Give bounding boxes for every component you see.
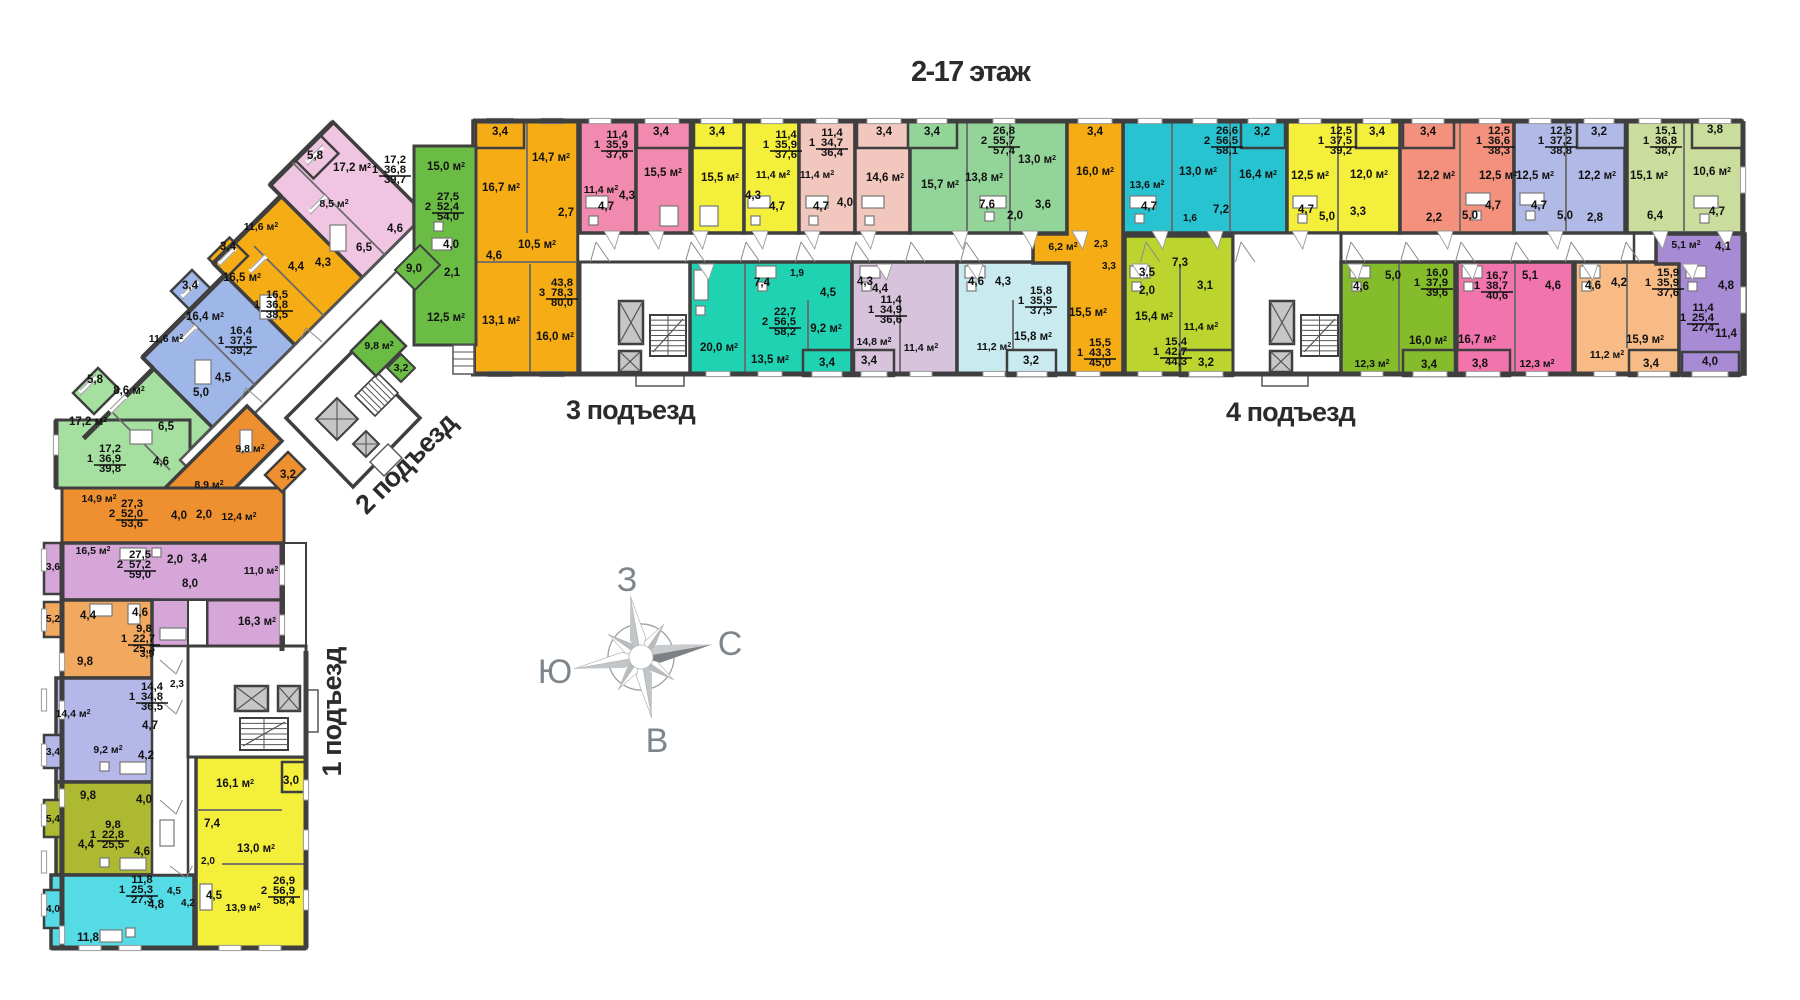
svg-text:37,5: 37,5 xyxy=(1030,305,1052,317)
svg-text:13,0 м2: 13,0 м2 xyxy=(237,843,275,855)
svg-text:38,8: 38,8 xyxy=(1550,145,1572,157)
svg-text:3,6: 3,6 xyxy=(46,562,60,573)
svg-text:14,7 м2: 14,7 м2 xyxy=(532,152,570,164)
svg-text:1,9: 1,9 xyxy=(790,268,804,279)
svg-text:13,1 м2: 13,1 м2 xyxy=(482,315,520,327)
svg-text:1: 1 xyxy=(1680,312,1686,324)
svg-text:6,5: 6,5 xyxy=(356,242,373,254)
svg-text:12,5 м2: 12,5 м2 xyxy=(1479,170,1517,182)
svg-text:3,0: 3,0 xyxy=(283,775,299,787)
svg-text:39,8: 39,8 xyxy=(99,463,121,475)
svg-text:38,7: 38,7 xyxy=(1655,145,1677,157)
svg-text:1: 1 xyxy=(1643,135,1649,147)
svg-text:58,4: 58,4 xyxy=(273,895,296,907)
svg-text:4,8: 4,8 xyxy=(1718,280,1735,292)
svg-text:14,6 м2: 14,6 м2 xyxy=(866,172,904,184)
svg-text:3,3: 3,3 xyxy=(1102,261,1116,272)
svg-text:1 подъезд: 1 подъезд xyxy=(317,647,347,777)
svg-text:1: 1 xyxy=(372,164,378,176)
svg-text:4,2: 4,2 xyxy=(1611,277,1627,289)
svg-text:3,4: 3,4 xyxy=(492,126,509,138)
svg-text:4,1: 4,1 xyxy=(1715,241,1732,253)
svg-text:1: 1 xyxy=(129,691,135,703)
svg-text:2,0: 2,0 xyxy=(1007,210,1023,222)
svg-text:7,6: 7,6 xyxy=(979,199,995,211)
svg-text:16,0 м2: 16,0 м2 xyxy=(1409,335,1447,347)
svg-text:6,2 м2: 6,2 м2 xyxy=(1048,241,1077,253)
svg-text:4,6: 4,6 xyxy=(153,456,169,468)
svg-text:58,1: 58,1 xyxy=(1216,145,1238,157)
svg-text:3,4: 3,4 xyxy=(220,241,237,253)
svg-text:5,8: 5,8 xyxy=(87,374,104,386)
svg-text:3,1: 3,1 xyxy=(1197,280,1214,292)
svg-text:4,0: 4,0 xyxy=(171,510,187,522)
svg-text:С: С xyxy=(718,625,743,663)
svg-text:В: В xyxy=(646,722,669,760)
svg-text:11,4 м2: 11,4 м2 xyxy=(756,169,791,181)
svg-text:1: 1 xyxy=(218,335,224,347)
svg-text:4,3: 4,3 xyxy=(995,276,1011,288)
svg-text:1: 1 xyxy=(1476,135,1482,147)
svg-text:4,3: 4,3 xyxy=(315,257,331,269)
svg-text:2,3: 2,3 xyxy=(1094,239,1108,250)
svg-text:5,1 м2: 5,1 м2 xyxy=(1671,239,1700,251)
svg-text:11,6 м2: 11,6 м2 xyxy=(149,333,184,345)
svg-text:2: 2 xyxy=(109,508,115,520)
svg-text:39,2: 39,2 xyxy=(1330,145,1352,157)
svg-text:16,5 м2: 16,5 м2 xyxy=(75,545,110,557)
svg-text:13,5 м2: 13,5 м2 xyxy=(751,354,789,366)
svg-text:4,3: 4,3 xyxy=(619,190,635,202)
svg-text:3,4: 3,4 xyxy=(1643,358,1660,370)
svg-text:2: 2 xyxy=(425,201,431,213)
svg-text:3 подъезд: 3 подъезд xyxy=(566,395,696,425)
svg-text:9,8 м2: 9,8 м2 xyxy=(235,443,264,455)
svg-text:4,0: 4,0 xyxy=(136,794,152,806)
svg-text:4,6: 4,6 xyxy=(1545,280,1561,292)
svg-text:11,8: 11,8 xyxy=(77,932,99,944)
svg-text:16,5 м2: 16,5 м2 xyxy=(223,272,261,284)
svg-text:10,5 м2: 10,5 м2 xyxy=(518,239,556,251)
svg-text:11,2 м2: 11,2 м2 xyxy=(977,341,1012,353)
svg-text:1: 1 xyxy=(121,633,127,645)
svg-text:Ю: Ю xyxy=(538,653,572,691)
svg-text:3,2: 3,2 xyxy=(1591,126,1607,138)
svg-text:4,6: 4,6 xyxy=(1585,280,1601,292)
svg-text:1: 1 xyxy=(1318,135,1324,147)
svg-text:5,0: 5,0 xyxy=(193,387,209,399)
svg-text:3,6: 3,6 xyxy=(1035,199,1051,211)
svg-text:5,0: 5,0 xyxy=(1557,210,1573,222)
svg-text:58,2: 58,2 xyxy=(774,326,796,338)
svg-text:4,4: 4,4 xyxy=(288,261,305,273)
svg-text:2,0: 2,0 xyxy=(167,554,183,566)
svg-text:57,4: 57,4 xyxy=(993,145,1016,157)
svg-text:7,2: 7,2 xyxy=(1213,204,1229,216)
svg-text:1: 1 xyxy=(1153,346,1159,358)
svg-text:16,7 м2: 16,7 м2 xyxy=(1458,334,1496,346)
svg-text:2-17 этаж: 2-17 этаж xyxy=(911,56,1031,88)
svg-text:13,6 м2: 13,6 м2 xyxy=(1129,179,1164,191)
svg-text:2,0: 2,0 xyxy=(201,856,215,867)
svg-text:2,0: 2,0 xyxy=(1139,285,1155,297)
svg-text:39,2: 39,2 xyxy=(230,345,252,357)
svg-text:11,4 м2: 11,4 м2 xyxy=(584,184,619,196)
svg-text:4,6: 4,6 xyxy=(486,250,502,262)
svg-text:16,0 м2: 16,0 м2 xyxy=(536,331,574,343)
svg-text:6,4: 6,4 xyxy=(1647,210,1664,222)
svg-text:15,9 м2: 15,9 м2 xyxy=(1626,334,1664,346)
svg-text:8,9 м2: 8,9 м2 xyxy=(194,479,223,491)
svg-text:1: 1 xyxy=(119,884,125,896)
svg-text:12,3 м2: 12,3 м2 xyxy=(1519,358,1554,370)
svg-text:9,0: 9,0 xyxy=(406,263,422,275)
svg-text:80,0: 80,0 xyxy=(551,297,573,309)
svg-text:2,2: 2,2 xyxy=(1426,212,1442,224)
svg-text:4,4: 4,4 xyxy=(80,610,97,622)
svg-text:3,9: 3,9 xyxy=(140,648,155,660)
svg-text:16,3 м2: 16,3 м2 xyxy=(238,616,276,628)
svg-text:44,3: 44,3 xyxy=(1165,356,1187,368)
svg-text:7,3: 7,3 xyxy=(1172,257,1188,269)
svg-text:7,4: 7,4 xyxy=(204,818,221,830)
svg-text:11,2 м2: 11,2 м2 xyxy=(1590,349,1625,361)
svg-text:2,8: 2,8 xyxy=(1587,212,1604,224)
svg-text:11,4 м2: 11,4 м2 xyxy=(1184,321,1219,333)
svg-text:6,5: 6,5 xyxy=(158,421,175,433)
svg-text:9,2 м2: 9,2 м2 xyxy=(93,744,122,756)
svg-text:4,7: 4,7 xyxy=(142,720,158,732)
svg-text:59,0: 59,0 xyxy=(129,569,151,581)
svg-text:3,2: 3,2 xyxy=(394,362,409,374)
svg-text:3,8: 3,8 xyxy=(1472,358,1489,370)
svg-text:14,8 м2: 14,8 м2 xyxy=(856,336,891,348)
svg-text:37,6: 37,6 xyxy=(606,149,628,161)
svg-text:2: 2 xyxy=(762,316,768,328)
svg-text:8,6 м2: 8,6 м2 xyxy=(113,385,145,397)
svg-text:3,8: 3,8 xyxy=(1707,124,1724,136)
svg-text:11,4: 11,4 xyxy=(1715,328,1737,340)
svg-text:27,4: 27,4 xyxy=(1692,322,1715,334)
svg-text:15,5 м2: 15,5 м2 xyxy=(644,167,682,179)
svg-text:4,6: 4,6 xyxy=(134,846,150,858)
svg-text:4,7: 4,7 xyxy=(1298,204,1314,216)
svg-text:45,0: 45,0 xyxy=(1089,357,1111,369)
svg-text:12,4 м2: 12,4 м2 xyxy=(221,511,256,523)
svg-text:3,2: 3,2 xyxy=(1023,355,1039,367)
svg-text:25,5: 25,5 xyxy=(102,839,124,851)
svg-text:4,7: 4,7 xyxy=(598,201,614,213)
svg-text:1: 1 xyxy=(1538,135,1544,147)
svg-text:5,0: 5,0 xyxy=(1462,210,1478,222)
svg-text:15,7 м2: 15,7 м2 xyxy=(921,179,959,191)
svg-text:36,4: 36,4 xyxy=(821,147,844,159)
svg-text:13,0 м2: 13,0 м2 xyxy=(1179,166,1217,178)
svg-text:15,5 м2: 15,5 м2 xyxy=(701,172,739,184)
svg-text:17,2 м2: 17,2 м2 xyxy=(69,416,107,428)
svg-text:2,1: 2,1 xyxy=(444,267,461,279)
svg-text:1: 1 xyxy=(1077,347,1083,359)
svg-text:9,8: 9,8 xyxy=(77,656,94,668)
svg-text:4,3: 4,3 xyxy=(857,276,873,288)
svg-text:3,4: 3,4 xyxy=(46,747,60,758)
svg-text:20,0 м2: 20,0 м2 xyxy=(700,342,738,354)
svg-text:16,1 м2: 16,1 м2 xyxy=(216,778,254,790)
svg-text:4,0: 4,0 xyxy=(837,197,853,209)
svg-text:4,7: 4,7 xyxy=(1531,200,1547,212)
svg-text:12,2 м2: 12,2 м2 xyxy=(1578,170,1616,182)
svg-text:1: 1 xyxy=(868,304,874,316)
svg-text:14,9 м2: 14,9 м2 xyxy=(81,493,116,505)
svg-text:54,0: 54,0 xyxy=(437,211,459,223)
svg-text:5,4: 5,4 xyxy=(46,814,60,825)
svg-text:4,2: 4,2 xyxy=(181,898,195,909)
svg-text:13,8 м2: 13,8 м2 xyxy=(965,172,1003,184)
svg-text:11,6 м2: 11,6 м2 xyxy=(244,221,279,233)
svg-text:9,8 м2: 9,8 м2 xyxy=(364,340,393,352)
svg-text:3,4: 3,4 xyxy=(861,355,878,367)
svg-text:3,2: 3,2 xyxy=(1254,126,1270,138)
svg-text:1: 1 xyxy=(809,137,815,149)
svg-text:10,6 м2: 10,6 м2 xyxy=(1693,166,1731,178)
svg-text:3,3: 3,3 xyxy=(1350,206,1366,218)
svg-text:1: 1 xyxy=(594,139,600,151)
svg-text:3,4: 3,4 xyxy=(876,126,893,138)
svg-text:12,5 м2: 12,5 м2 xyxy=(1291,170,1329,182)
svg-text:3,4: 3,4 xyxy=(182,280,199,292)
svg-text:1,6: 1,6 xyxy=(1183,213,1197,224)
svg-text:1: 1 xyxy=(1474,280,1480,292)
svg-text:4,3: 4,3 xyxy=(745,190,761,202)
svg-text:5,1: 5,1 xyxy=(1522,270,1539,282)
svg-text:1: 1 xyxy=(1414,277,1420,289)
svg-text:3,4: 3,4 xyxy=(924,126,941,138)
svg-text:12,2 м2: 12,2 м2 xyxy=(1417,170,1455,182)
svg-text:4,5: 4,5 xyxy=(215,372,232,384)
svg-text:2,0: 2,0 xyxy=(196,509,212,521)
svg-text:38,5: 38,5 xyxy=(266,309,288,321)
svg-text:3,4: 3,4 xyxy=(653,126,670,138)
svg-text:3,4: 3,4 xyxy=(1421,359,1438,371)
svg-text:4,7: 4,7 xyxy=(1485,200,1501,212)
svg-text:17,2 м2: 17,2 м2 xyxy=(333,162,371,174)
svg-text:2,3: 2,3 xyxy=(170,679,184,690)
svg-text:4,4: 4,4 xyxy=(78,839,95,851)
svg-text:16,7 м2: 16,7 м2 xyxy=(482,182,520,194)
svg-text:39,6: 39,6 xyxy=(1426,287,1448,299)
svg-text:15,1 м2: 15,1 м2 xyxy=(1630,170,1668,182)
svg-text:1: 1 xyxy=(763,139,769,151)
svg-text:5,2: 5,2 xyxy=(46,614,60,625)
svg-text:3,4: 3,4 xyxy=(1420,126,1437,138)
svg-text:37,6: 37,6 xyxy=(775,149,797,161)
svg-text:8,0: 8,0 xyxy=(182,578,198,590)
svg-text:15,5 м2: 15,5 м2 xyxy=(1069,307,1107,319)
svg-text:3: 3 xyxy=(539,287,545,299)
svg-text:9,2 м2: 9,2 м2 xyxy=(810,323,842,335)
svg-text:16,4 м2: 16,4 м2 xyxy=(1239,169,1277,181)
svg-text:4,0: 4,0 xyxy=(46,904,60,915)
svg-text:4,2: 4,2 xyxy=(138,750,154,762)
svg-text:39,7: 39,7 xyxy=(384,174,406,186)
svg-text:2: 2 xyxy=(981,135,987,147)
svg-text:З: З xyxy=(617,561,638,599)
svg-text:4,7: 4,7 xyxy=(1709,206,1725,218)
svg-text:4,6: 4,6 xyxy=(1353,281,1369,293)
svg-text:1: 1 xyxy=(87,453,93,465)
svg-text:4,6: 4,6 xyxy=(387,223,403,235)
svg-text:5,0: 5,0 xyxy=(1319,211,1335,223)
svg-text:1: 1 xyxy=(1018,295,1024,307)
svg-text:3,2: 3,2 xyxy=(1198,357,1214,369)
svg-text:4,8: 4,8 xyxy=(148,899,165,911)
svg-text:4,7: 4,7 xyxy=(1141,201,1157,213)
svg-text:1: 1 xyxy=(254,299,260,311)
svg-text:4,0: 4,0 xyxy=(443,239,459,251)
svg-text:4,5: 4,5 xyxy=(167,886,181,897)
svg-text:4,6: 4,6 xyxy=(968,276,984,288)
svg-text:11,0 м2: 11,0 м2 xyxy=(244,565,279,577)
svg-text:1: 1 xyxy=(1645,277,1651,289)
svg-text:3,4: 3,4 xyxy=(191,553,208,565)
svg-text:3,5: 3,5 xyxy=(1139,267,1156,279)
svg-text:3,4: 3,4 xyxy=(819,357,836,369)
svg-text:2: 2 xyxy=(1204,135,1210,147)
svg-text:12,5 м2: 12,5 м2 xyxy=(427,312,465,324)
svg-text:3,4: 3,4 xyxy=(1369,126,1386,138)
svg-text:7,4: 7,4 xyxy=(754,277,771,289)
svg-text:13,0 м2: 13,0 м2 xyxy=(1018,154,1056,166)
svg-text:3,2: 3,2 xyxy=(280,469,296,481)
svg-text:36,6: 36,6 xyxy=(880,314,902,326)
svg-text:37,6: 37,6 xyxy=(1657,287,1679,299)
svg-text:16,0 м2: 16,0 м2 xyxy=(1076,166,1114,178)
svg-text:14,4 м2: 14,4 м2 xyxy=(55,708,90,720)
svg-text:4,0: 4,0 xyxy=(1702,356,1718,368)
svg-text:2,7: 2,7 xyxy=(558,207,574,219)
svg-text:4,5: 4,5 xyxy=(820,287,837,299)
svg-text:5,0: 5,0 xyxy=(1385,270,1401,282)
svg-text:4,7: 4,7 xyxy=(813,201,829,213)
svg-text:36,5: 36,5 xyxy=(141,701,163,713)
svg-text:2: 2 xyxy=(117,559,123,571)
svg-text:4,5: 4,5 xyxy=(206,890,223,902)
svg-text:11,4 м2: 11,4 м2 xyxy=(904,342,939,354)
svg-text:15,4 м2: 15,4 м2 xyxy=(1135,311,1173,323)
svg-text:9,8: 9,8 xyxy=(80,790,97,802)
svg-text:12,0 м2: 12,0 м2 xyxy=(1350,169,1388,181)
svg-text:38,3: 38,3 xyxy=(1488,145,1510,157)
svg-text:5,8: 5,8 xyxy=(307,150,324,162)
svg-text:13,9 м2: 13,9 м2 xyxy=(225,902,260,914)
svg-text:8,5 м2: 8,5 м2 xyxy=(319,198,348,210)
svg-text:3,4: 3,4 xyxy=(709,126,726,138)
svg-text:3,4: 3,4 xyxy=(1087,126,1104,138)
svg-text:4,6: 4,6 xyxy=(132,607,148,619)
svg-text:12,5 м2: 12,5 м2 xyxy=(1516,170,1554,182)
svg-text:16,4 м2: 16,4 м2 xyxy=(186,311,224,323)
svg-text:12,3 м2: 12,3 м2 xyxy=(1354,358,1389,370)
svg-text:40,6: 40,6 xyxy=(1486,290,1508,302)
svg-text:4,7: 4,7 xyxy=(769,201,785,213)
svg-text:2: 2 xyxy=(261,885,267,897)
svg-text:53,6: 53,6 xyxy=(121,518,143,530)
svg-text:15,8 м2: 15,8 м2 xyxy=(1014,331,1052,343)
svg-text:11,4 м2: 11,4 м2 xyxy=(800,169,835,181)
svg-text:15,0 м2: 15,0 м2 xyxy=(427,161,465,173)
svg-text:4 подъезд: 4 подъезд xyxy=(1226,397,1356,427)
